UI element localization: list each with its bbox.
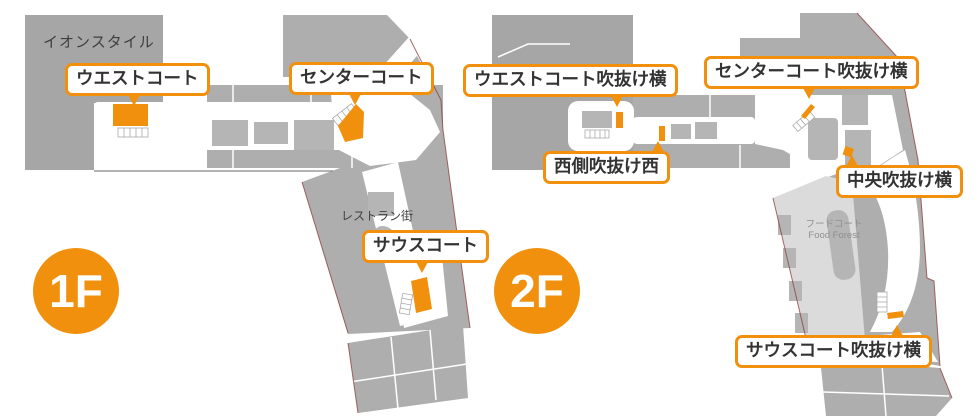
callout-west-void: ウエストコート吹抜け横: [463, 64, 678, 97]
escalator-icon: [877, 292, 887, 312]
callout-center-void: センターコート吹抜け横: [704, 56, 919, 89]
callout-west-court: ウエストコート: [65, 63, 210, 96]
floor2-badge: 2F: [494, 248, 580, 334]
floor1-badge: 1F: [33, 248, 119, 334]
west-court-marker: [113, 104, 148, 126]
callout-pointer: [127, 93, 141, 106]
callout-west-side-text: 西側吹抜け西: [554, 156, 659, 176]
food-court-label: フードコート Food Forest: [796, 219, 872, 242]
callout-south-void-text: サウスコート吹抜け横: [746, 340, 921, 360]
callout-south-void: サウスコート吹抜け横: [735, 335, 932, 368]
callout-center-court: センターコート: [289, 62, 434, 95]
callout-center-court-text: センターコート: [300, 67, 423, 87]
callout-pointer: [890, 325, 904, 338]
callout-central-void-text: 中央吹抜け横: [847, 170, 952, 190]
callout-south-court-text: サウスコート: [373, 235, 478, 255]
restaurant-street-label: レストラン街: [341, 207, 413, 224]
callout-west-void-text: ウエストコート吹抜け横: [474, 69, 667, 89]
callout-pointer: [802, 86, 816, 99]
food-court-label-en: Food Forest: [796, 230, 872, 241]
bottom-block: [348, 325, 468, 413]
west-side-marker: [659, 126, 665, 141]
callout-pointer: [610, 94, 624, 107]
callout-central-void: 中央吹抜け横: [836, 165, 963, 198]
escalator-icon: [118, 128, 148, 137]
callout-west-side: 西側吹抜け西: [543, 151, 670, 184]
callout-west-court-text: ウエストコート: [76, 68, 199, 88]
callout-south-court: サウスコート: [362, 230, 489, 263]
callout-pointer: [651, 141, 665, 154]
food-court-label-jp: フードコート: [796, 219, 872, 230]
escalator-icon: [585, 130, 609, 138]
callout-center-void-text: センターコート吹抜け横: [715, 61, 908, 81]
callout-pointer: [348, 92, 362, 105]
west-void-marker: [616, 112, 623, 128]
callout-pointer: [845, 155, 859, 168]
anchor-store-label: イオンスタイル: [43, 31, 155, 52]
mall-floor-maps: イオンスタイル レストラン街 フードコート Food Forest ウエストコー…: [0, 0, 980, 420]
callout-pointer: [415, 260, 429, 273]
